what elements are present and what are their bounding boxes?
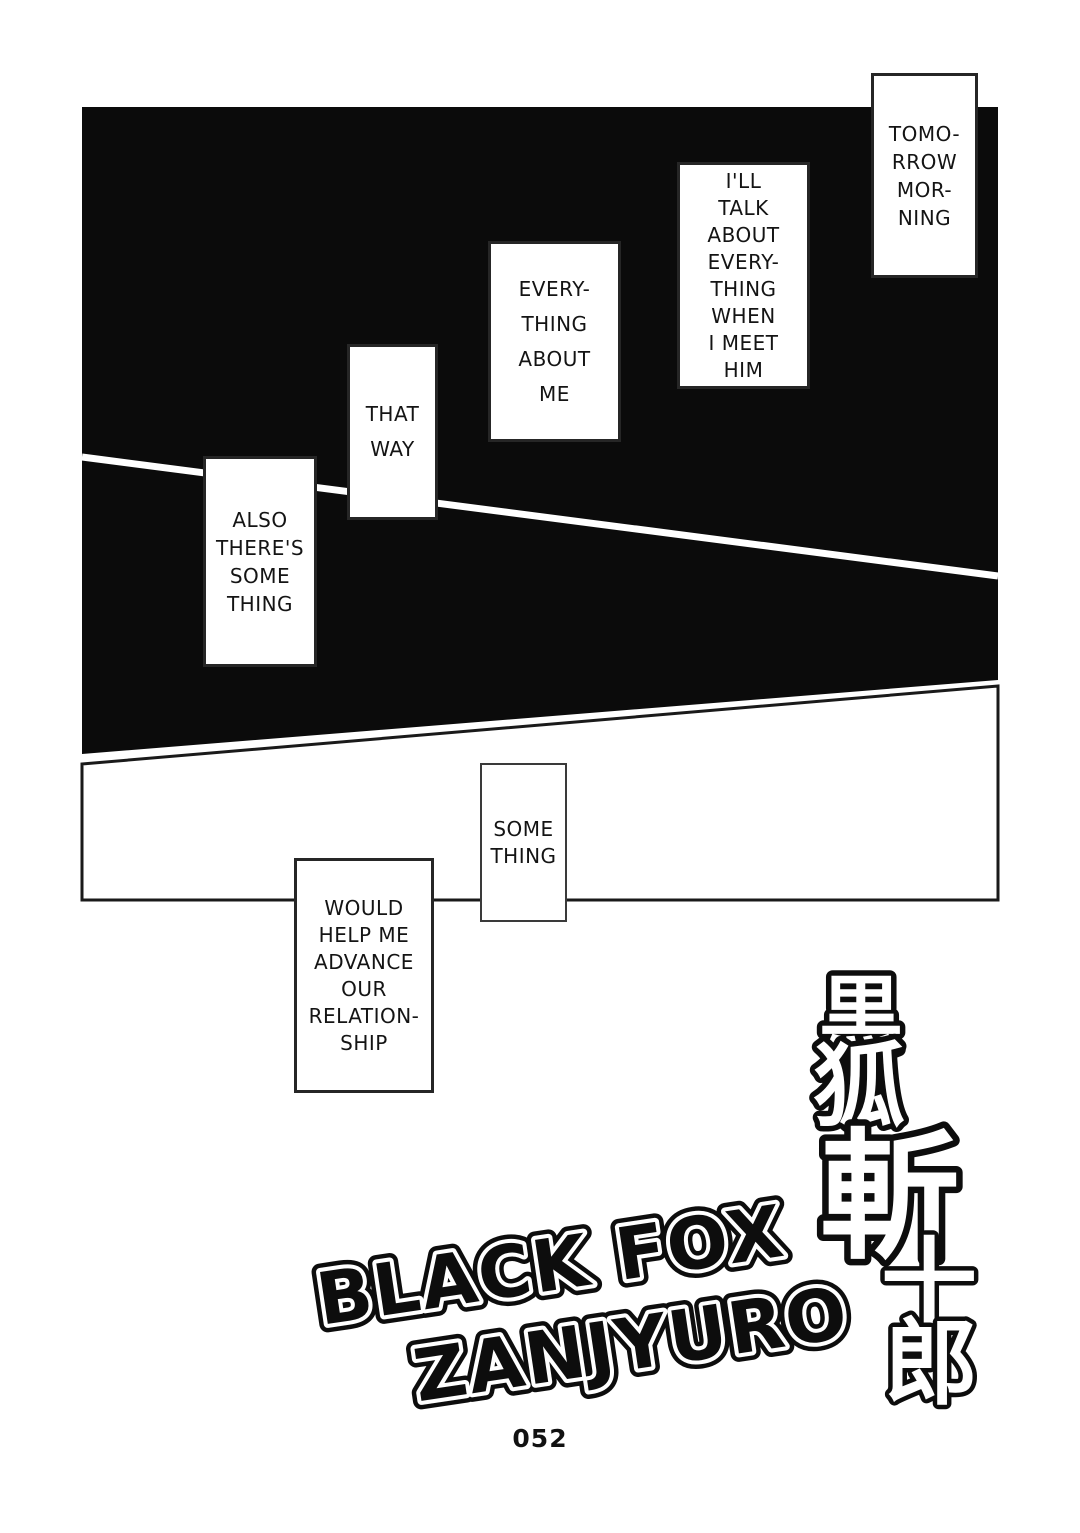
bubble-line: WHEN	[711, 303, 775, 330]
speech-bubble-everything: EVERY- THING ABOUT ME	[488, 241, 621, 442]
bubble-line: THING	[227, 590, 293, 618]
bubble-line: OUR	[341, 976, 387, 1003]
bubble-line: WAY	[370, 432, 415, 467]
bubble-line: THERE'S	[216, 534, 304, 562]
bubble-line: I'LL	[726, 168, 762, 195]
page-number: 052	[0, 1424, 1080, 1453]
bubble-line: ABOUT	[518, 342, 590, 377]
bubble-line: SHIP	[340, 1030, 388, 1057]
speech-bubble-would-help: WOULD HELP ME ADVANCE OUR RELATION- SHIP	[294, 858, 434, 1093]
bubble-line: ME	[539, 377, 570, 412]
english-title: BLACK FOX ZANJYURO BLACK FOX ZANJYURO BL…	[311, 1181, 854, 1430]
bubble-line: TALK	[718, 195, 769, 222]
bubble-line: HELP ME	[319, 922, 410, 949]
bubble-line: ADVANCE	[314, 949, 414, 976]
bubble-line: NING	[898, 204, 951, 232]
speech-bubble-also: ALSO THERE'S SOME THING	[203, 456, 317, 667]
bubble-line: WOULD	[324, 895, 403, 922]
bubble-line: SOME	[230, 562, 290, 590]
bubble-line: RELATION-	[309, 1003, 420, 1030]
bubble-line: ABOUT	[707, 222, 779, 249]
bubble-line: EVERY-	[519, 272, 591, 307]
speech-bubble-ill-talk: I'LL TALK ABOUT EVERY- THING WHEN I MEET…	[677, 162, 810, 389]
speech-bubble-tomorrow: TOMO- RROW MOR- NING	[871, 73, 978, 278]
bubble-line: THAT	[366, 397, 420, 432]
kanji-ro: 郎	[884, 1310, 978, 1419]
bubble-line: THING	[521, 307, 587, 342]
bubble-line: MOR-	[897, 176, 952, 204]
bubble-line: THING	[490, 843, 556, 870]
bubble-line: THING	[710, 276, 776, 303]
bubble-line: SOME	[493, 816, 553, 843]
bubble-line: I MEET	[708, 330, 778, 357]
bubble-line: ALSO	[232, 506, 287, 534]
speech-bubble-something: SOME THING	[480, 763, 567, 922]
bubble-line: RROW	[892, 148, 957, 176]
bubble-line: EVERY-	[708, 249, 780, 276]
bubble-line: HIM	[724, 357, 764, 384]
manga-page: TOMO- RROW MOR- NING I'LL TALK ABOUT EVE…	[0, 0, 1080, 1533]
bubble-line: TOMO-	[889, 120, 960, 148]
speech-bubble-that-way: THAT WAY	[347, 344, 438, 520]
